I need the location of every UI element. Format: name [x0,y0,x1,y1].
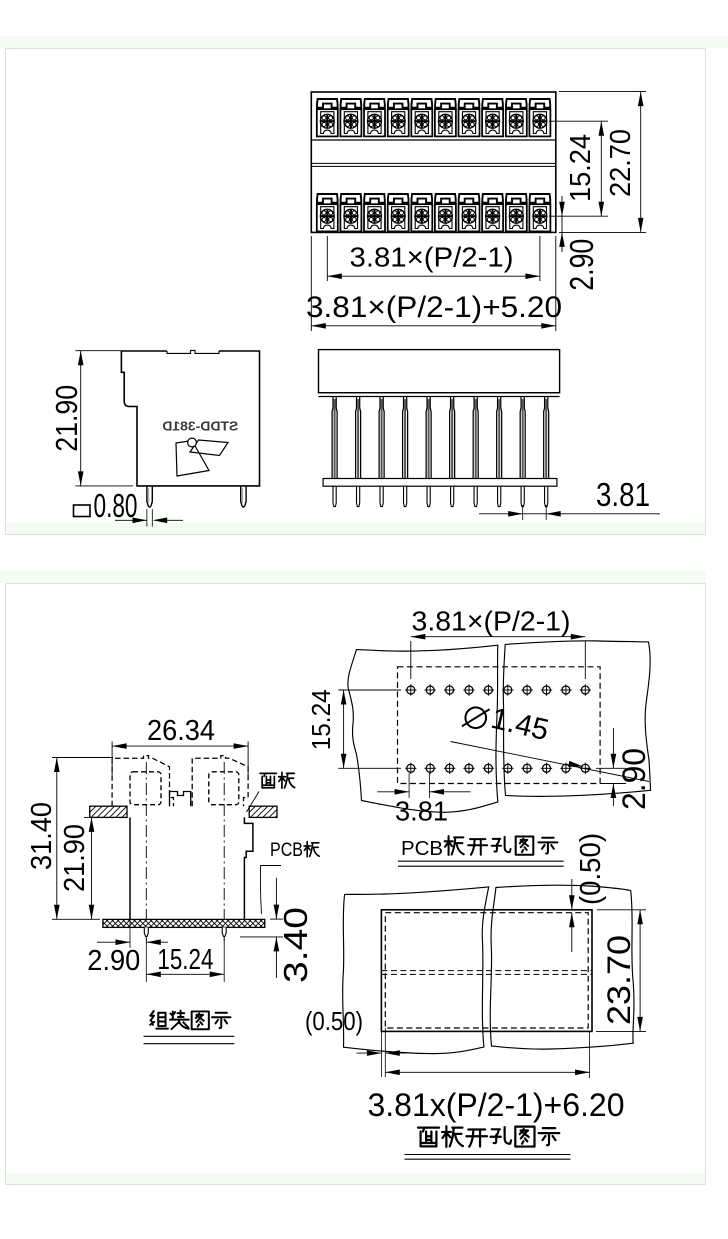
svg-text:PCB: PCB [270,839,303,861]
svg-text:3.81x(P/2-1)+6.20: 3.81x(P/2-1)+6.20 [368,1087,625,1123]
svg-text:0.80: 0.80 [94,487,138,524]
svg-text:3.81×(P/2-1): 3.81×(P/2-1) [350,242,514,273]
svg-text:(0.50): (0.50) [305,1006,363,1036]
svg-text:21.90: 21.90 [50,385,84,452]
svg-text:(0.50): (0.50) [575,833,607,905]
svg-text:STDD-381D: STDD-381D [162,419,238,434]
svg-text:26.34: 26.34 [147,715,215,747]
svg-text:21.90: 21.90 [59,824,91,892]
svg-text:22.70: 22.70 [605,129,637,197]
svg-text:3.81×(P/2-1)+5.20: 3.81×(P/2-1)+5.20 [306,291,562,324]
svg-text:31.40: 31.40 [26,802,58,870]
svg-text:2.90: 2.90 [616,748,652,810]
svg-text:2.90: 2.90 [563,239,600,291]
svg-text:PCB: PCB [401,837,443,860]
svg-text:3.81: 3.81 [596,477,650,514]
svg-text:3.81: 3.81 [395,796,448,827]
svg-text:23.70: 23.70 [601,935,637,1025]
svg-text:2.90: 2.90 [87,945,140,977]
svg-text:3.81×(P/2-1): 3.81×(P/2-1) [412,606,571,637]
svg-text:3.40: 3.40 [277,907,314,983]
svg-text:15.24: 15.24 [157,944,213,976]
svg-text:15.24: 15.24 [306,689,336,750]
svg-text:15.24: 15.24 [565,134,597,202]
